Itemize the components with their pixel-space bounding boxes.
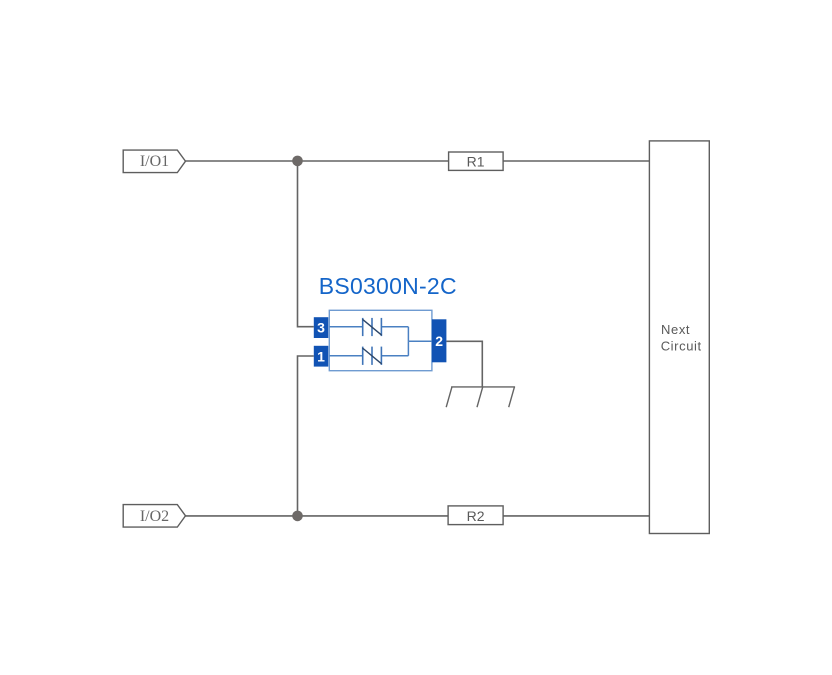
svg-text:1: 1 <box>317 348 325 364</box>
svg-text:BS0300N-2C: BS0300N-2C <box>319 273 457 299</box>
svg-text:R1: R1 <box>467 153 485 169</box>
svg-text:I/O2: I/O2 <box>140 508 169 525</box>
svg-text:2: 2 <box>435 333 443 349</box>
svg-text:R2: R2 <box>467 508 485 524</box>
svg-text:3: 3 <box>317 320 325 336</box>
svg-text:I/O1: I/O1 <box>140 153 169 170</box>
svg-text:Circuit: Circuit <box>661 338 702 353</box>
svg-text:Next: Next <box>661 322 690 337</box>
